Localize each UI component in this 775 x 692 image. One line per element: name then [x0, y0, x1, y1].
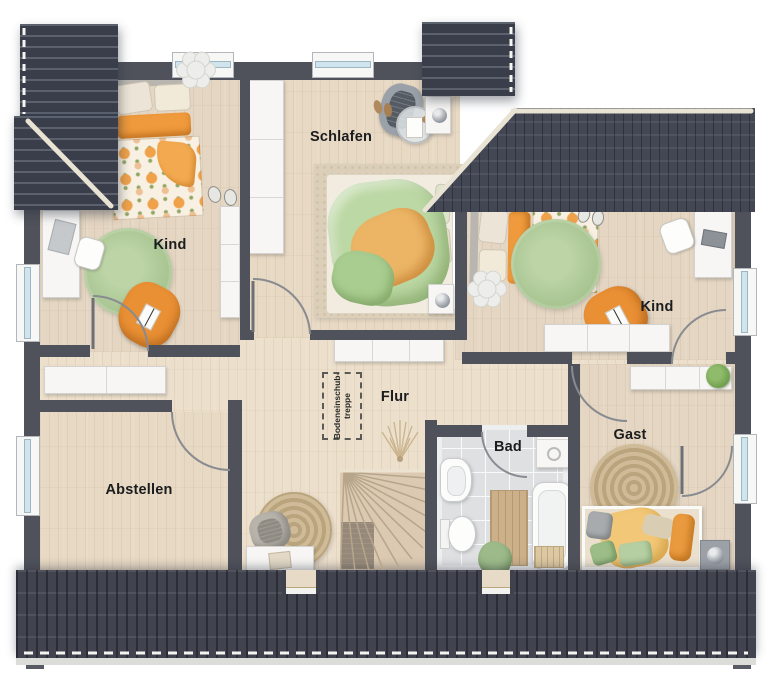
- bed-pillow: [154, 83, 191, 112]
- wall-right: [735, 205, 751, 570]
- roof-top-right: [425, 108, 755, 212]
- lamp: [432, 108, 447, 123]
- daybed-pillow-gray: [585, 510, 614, 540]
- bad-bath-caddy: [534, 546, 564, 568]
- schlafen-wardrobe: [248, 80, 284, 254]
- gast-side-table: [700, 540, 730, 570]
- attic-hatch-line2: treppe: [342, 370, 352, 442]
- dormer-window-bad: [478, 570, 514, 594]
- wall-abstellen-north: [228, 400, 242, 412]
- roof-bottom-eave: [16, 658, 756, 665]
- window-schlafen-north: [312, 52, 374, 78]
- roof-top-left-upper: [20, 24, 118, 120]
- room-label-gast: Gast: [613, 427, 646, 443]
- room-label-flur: Flur: [381, 389, 409, 405]
- wall-abstellen-east: [228, 412, 242, 570]
- open-book: [136, 303, 161, 330]
- wall-abstellen-north: [24, 400, 172, 412]
- abstellen-sideboard: [44, 366, 166, 394]
- room-label-abstellen: Abstellen: [105, 482, 172, 498]
- wall-kindleft-schlafen: [240, 80, 250, 340]
- kind-left-wardrobe: [220, 206, 240, 318]
- room-label-kind-right: Kind: [640, 299, 673, 315]
- room-label-bad: Bad: [494, 439, 522, 455]
- kind-right-sideboard: [544, 324, 670, 352]
- wall-schlafen-kindright: [455, 200, 467, 340]
- attic-hatch-line1: Bodeneinschub-: [332, 370, 342, 442]
- desk-laptop: [47, 219, 76, 255]
- window-kind-left-west: [16, 264, 40, 342]
- wall-bad-north: [527, 425, 568, 437]
- roof-top-left-lower: [14, 116, 118, 210]
- stairs-mat: [341, 522, 374, 569]
- daybed-pillow-green: [618, 540, 654, 567]
- desk-laptop: [268, 551, 292, 570]
- room-label-kind-left: Kind: [153, 237, 186, 253]
- wall-gast-west: [568, 364, 580, 570]
- floor-plan: Bodeneinschub- treppe: [0, 0, 775, 692]
- wall-kindleft-south: [148, 345, 240, 357]
- room-label-schlafen: Schlafen: [310, 129, 372, 145]
- wall-bad-west: [425, 420, 437, 570]
- wall-kindright-south: [726, 352, 735, 364]
- wall-kindright-south: [462, 352, 572, 364]
- bed-cushion-orange: [116, 112, 191, 139]
- gast-daybed: [582, 506, 702, 570]
- wall-kindright-south: [627, 352, 672, 364]
- wall-kindleft-south: [24, 345, 90, 357]
- schlafen-nightstand: [428, 284, 454, 314]
- magazine: [406, 117, 423, 138]
- roof-gable: [422, 22, 515, 96]
- roof-bottom: [16, 570, 756, 658]
- bed-duvet: [110, 136, 204, 221]
- flur-desk: [246, 546, 314, 572]
- attic-hatch-box: Bodeneinschub- treppe: [322, 372, 362, 440]
- window-kind-right-east: [733, 268, 757, 336]
- kind-left-bed: [106, 74, 203, 221]
- duvet-fold: [154, 140, 198, 187]
- lamp: [707, 547, 724, 564]
- wall-top: [108, 62, 426, 80]
- wall-schlafen-south: [240, 330, 254, 340]
- kind-right-desk: [694, 210, 732, 278]
- wall-schlafen-south: [310, 330, 462, 340]
- window-kind-left-north: [172, 52, 234, 78]
- attic-hatch-label: Bodeneinschub- treppe: [332, 370, 352, 442]
- kind-right-rug: [511, 219, 601, 309]
- bed-pillow: [477, 208, 509, 245]
- dormer-window-flur: [282, 570, 320, 594]
- bad-sink: [440, 458, 472, 502]
- window-gast-east: [733, 434, 757, 504]
- wall-bad-north: [437, 425, 482, 437]
- lamp: [435, 293, 450, 308]
- flur-sideboard: [334, 338, 444, 362]
- bed-pillow: [113, 80, 153, 115]
- schlafen-nightstand-top: [425, 96, 451, 134]
- bed-headboard: [469, 203, 479, 291]
- daybed-pillow-orange: [668, 513, 696, 562]
- desk-laptop: [701, 229, 727, 249]
- plant: [706, 364, 730, 388]
- window-abstellen-west: [16, 436, 40, 516]
- bad-toilet: [440, 516, 476, 552]
- bed-pillow: [478, 249, 507, 281]
